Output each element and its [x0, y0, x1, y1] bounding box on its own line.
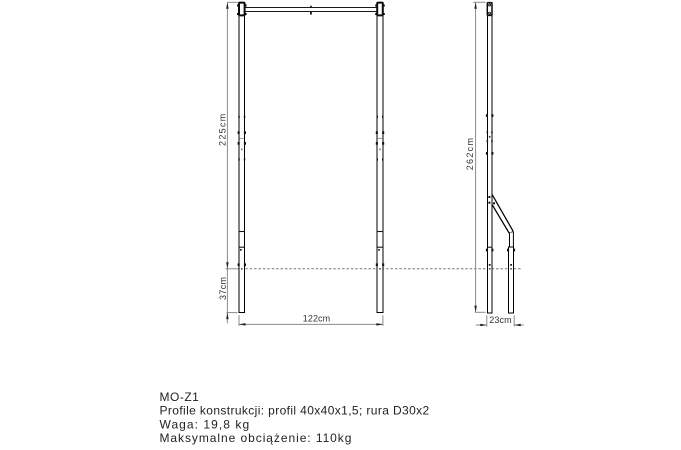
svg-text:37cm: 37cm	[218, 277, 228, 300]
svg-text:Waga: 19,8 kg: Waga: 19,8 kg	[160, 417, 251, 431]
svg-text:Maksymalne obciążenie: 110kg: Maksymalne obciążenie: 110kg	[160, 431, 353, 445]
svg-text:262cm: 262cm	[465, 137, 475, 171]
svg-text:225cm: 225cm	[217, 112, 227, 146]
svg-text:MO-Z1: MO-Z1	[160, 390, 200, 404]
svg-text:122cm: 122cm	[303, 313, 331, 323]
svg-text:Profile konstrukcji: profil 40: Profile konstrukcji: profil 40x40x1,5; r…	[160, 403, 430, 417]
svg-text:23cm: 23cm	[489, 315, 511, 325]
